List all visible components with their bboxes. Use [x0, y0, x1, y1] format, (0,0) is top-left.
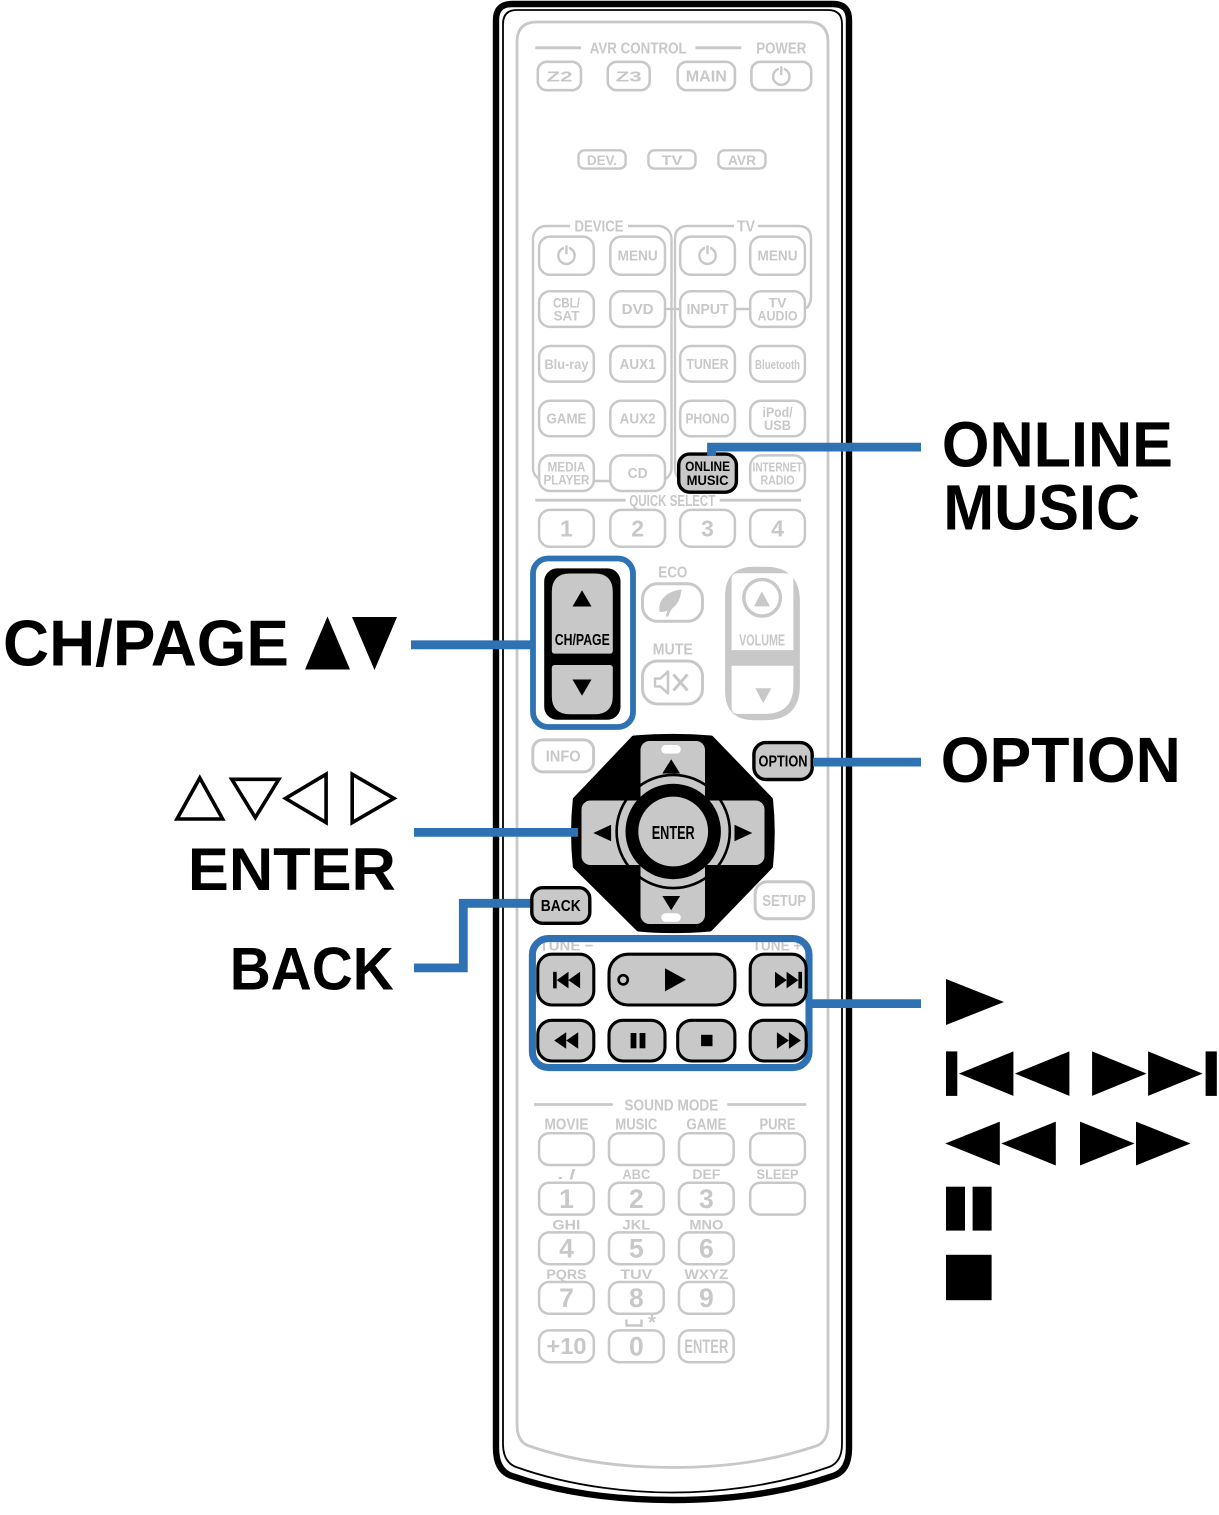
svg-text:4: 4: [559, 1234, 574, 1264]
svg-text:1: 1: [560, 515, 573, 541]
svg-text:MUSIC: MUSIC: [687, 473, 729, 488]
svg-text:MUSIC: MUSIC: [943, 471, 1140, 543]
svg-text:ECO: ECO: [658, 564, 687, 581]
svg-text:MUSIC: MUSIC: [615, 1116, 657, 1133]
svg-text:SETUP: SETUP: [762, 893, 806, 910]
svg-text:QUICK SELECT: QUICK SELECT: [629, 493, 715, 510]
svg-text:ONLINE: ONLINE: [942, 409, 1173, 481]
svg-text:5: 5: [629, 1234, 644, 1264]
svg-text:PHONO: PHONO: [686, 412, 730, 428]
svg-text:CD: CD: [628, 466, 648, 482]
svg-text:PLAYER: PLAYER: [543, 473, 589, 488]
svg-text:VOLUME: VOLUME: [739, 632, 785, 649]
svg-text:AVR CONTROL: AVR CONTROL: [590, 41, 687, 58]
svg-text:Bluetooth: Bluetooth: [755, 358, 800, 372]
svg-text:PQRS: PQRS: [546, 1267, 586, 1282]
svg-text:MOVIE: MOVIE: [544, 1116, 588, 1133]
svg-text:ONLINE: ONLINE: [685, 459, 730, 474]
svg-text:DVD: DVD: [622, 302, 654, 318]
svg-text:USB: USB: [764, 418, 791, 433]
svg-text:GAME: GAME: [686, 1116, 726, 1133]
svg-text:AUX2: AUX2: [620, 412, 656, 428]
svg-text:MAIN: MAIN: [686, 69, 727, 86]
svg-text:1: 1: [559, 1184, 574, 1214]
svg-text:BACK: BACK: [230, 935, 394, 1002]
svg-text:OPTION: OPTION: [759, 754, 808, 771]
svg-text:CH/PAGE: CH/PAGE: [3, 607, 289, 680]
svg-text:7: 7: [559, 1283, 574, 1313]
svg-text:GHI: GHI: [552, 1217, 580, 1232]
svg-text:WXYZ: WXYZ: [684, 1267, 728, 1282]
svg-text:BACK: BACK: [541, 898, 582, 915]
svg-text:TUV: TUV: [620, 1267, 652, 1282]
svg-text:9: 9: [699, 1283, 714, 1313]
svg-text:TUNER: TUNER: [687, 357, 729, 373]
svg-text:SAT: SAT: [553, 309, 580, 324]
svg-text:ENTER: ENTER: [652, 822, 695, 843]
svg-text:JKL: JKL: [622, 1217, 650, 1232]
svg-text:TV: TV: [662, 152, 684, 168]
svg-text:8: 8: [629, 1283, 644, 1313]
svg-text:GAME: GAME: [546, 412, 586, 428]
svg-text:RADIO: RADIO: [761, 473, 795, 488]
svg-text:SLEEP: SLEEP: [757, 1167, 799, 1182]
svg-text:SOUND MODE: SOUND MODE: [624, 1097, 718, 1114]
svg-text:ENTER: ENTER: [188, 836, 396, 903]
svg-text:3: 3: [701, 515, 714, 541]
svg-text:TV: TV: [737, 219, 756, 236]
svg-text:CH/PAGE: CH/PAGE: [555, 632, 610, 649]
svg-text:OPTION: OPTION: [941, 724, 1181, 796]
svg-text:MUTE: MUTE: [653, 642, 693, 659]
svg-text:4: 4: [771, 515, 784, 541]
svg-text:MENU: MENU: [618, 249, 658, 265]
svg-text:PURE: PURE: [760, 1116, 796, 1133]
svg-text:MENU: MENU: [758, 249, 798, 265]
svg-text:Blu-ray: Blu-ray: [544, 357, 588, 372]
svg-text:DEVICE: DEVICE: [575, 219, 624, 236]
svg-text:AUX1: AUX1: [620, 357, 656, 373]
svg-text:ABC: ABC: [622, 1167, 650, 1182]
svg-text:Z2: Z2: [547, 69, 573, 86]
svg-text:+10: +10: [546, 1333, 586, 1359]
svg-text:0: 0: [629, 1332, 644, 1362]
svg-text:DEF: DEF: [692, 1167, 720, 1182]
svg-text:MNO: MNO: [689, 1217, 723, 1232]
svg-text:. /: . /: [557, 1167, 575, 1182]
svg-text:AVR: AVR: [728, 152, 756, 168]
svg-text:6: 6: [699, 1234, 714, 1264]
svg-text:Z3: Z3: [616, 69, 642, 86]
svg-text:INPUT: INPUT: [687, 302, 729, 318]
svg-text:INFO: INFO: [546, 748, 581, 765]
svg-text:DEV.: DEV.: [587, 152, 617, 168]
svg-text:ENTER: ENTER: [684, 1337, 728, 1358]
svg-text:POWER: POWER: [756, 41, 806, 58]
svg-text:AUDIO: AUDIO: [758, 309, 798, 324]
svg-text:3: 3: [699, 1184, 714, 1214]
svg-text:2: 2: [631, 515, 644, 541]
svg-text:2: 2: [629, 1184, 644, 1214]
